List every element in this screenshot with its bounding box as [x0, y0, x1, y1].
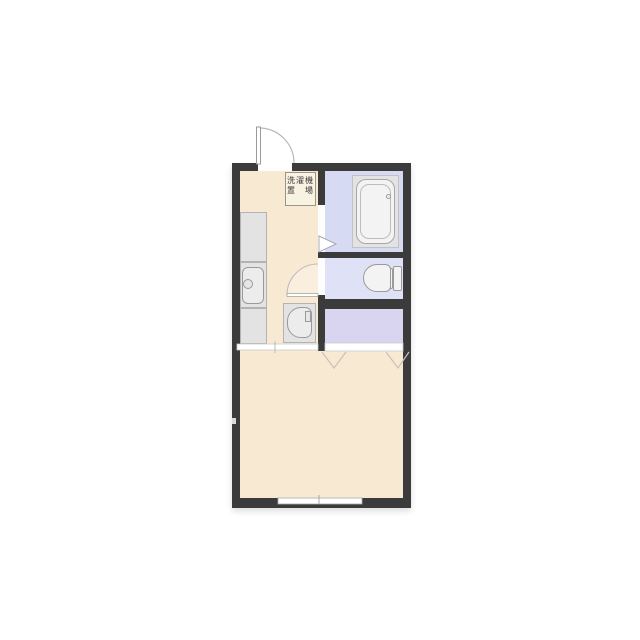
main-room-floor — [240, 344, 403, 498]
wall-bathroom-bottom — [318, 252, 403, 258]
wall-kitchen-bathroom — [318, 171, 325, 205]
toilet-bowl-icon — [363, 264, 391, 292]
toilet-door-opening — [318, 258, 325, 295]
washbasin-faucet-icon — [305, 311, 311, 322]
washing-machine-area-box: 洗濯機 置 場 — [285, 172, 316, 206]
washing-machine-label-line2: 置 場 — [286, 186, 315, 196]
entrance-door-opening — [258, 163, 292, 171]
bathroom-door-opening — [318, 205, 325, 252]
bathtub-drain-icon — [386, 194, 391, 199]
toilet-tank-icon — [393, 266, 402, 291]
floorplan-page: { "floorplan": { "type": "japanese-apart… — [0, 0, 640, 640]
closet-floor — [325, 309, 403, 343]
wall-toilet-bottom — [318, 299, 403, 309]
washing-machine-label-line1: 洗濯機 — [286, 176, 315, 186]
entrance-door-icon — [257, 127, 295, 164]
bathtub-inner-icon — [360, 184, 391, 239]
wall-closet-left — [318, 295, 325, 351]
kitchen-counter-bottom-icon — [240, 308, 267, 344]
left-wall-notch — [232, 418, 236, 424]
kitchen-counter-top-icon — [240, 212, 267, 262]
kitchen-sink-drain-icon — [243, 279, 253, 289]
